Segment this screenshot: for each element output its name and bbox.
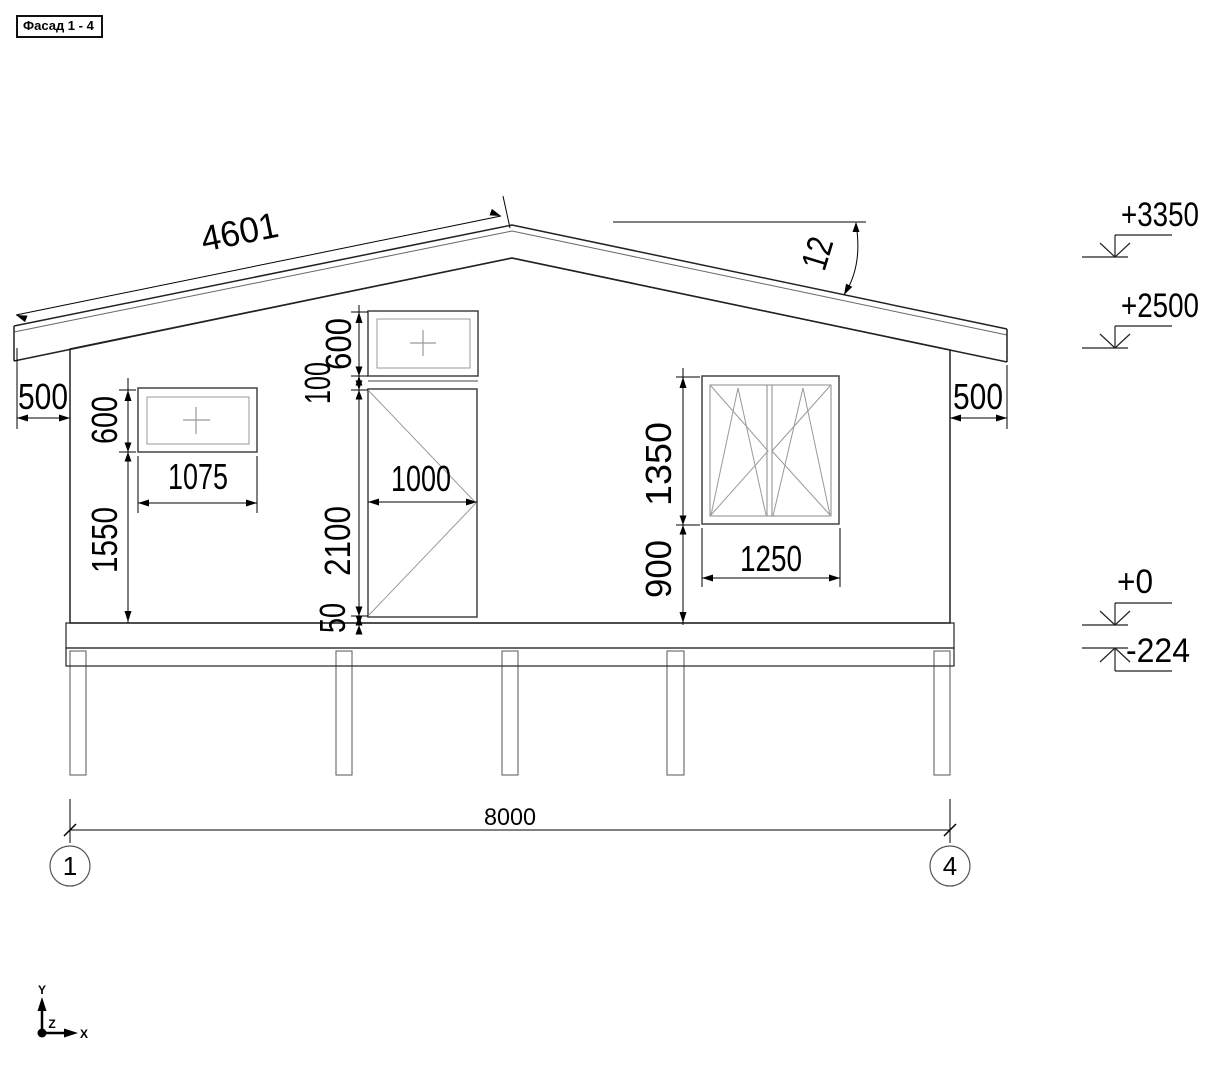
ucs-y-arrow xyxy=(38,997,47,1011)
dim-left-window-width: 1075 xyxy=(168,456,228,497)
dim-roof-slope-length: 4601 xyxy=(197,204,282,260)
dim-right-window-height: 1350 xyxy=(638,422,679,506)
post xyxy=(336,651,352,775)
level-eave-value: +2500 xyxy=(1121,287,1199,325)
dim-door-width: 1000 xyxy=(391,458,451,499)
post xyxy=(934,651,950,775)
dim-eave-right: 500 xyxy=(953,376,1003,417)
window-left xyxy=(138,388,257,452)
ucs-x-arrow xyxy=(64,1029,78,1038)
level-underfloor-value: -224 xyxy=(1126,632,1190,670)
dim-left-window-height: 600 xyxy=(84,396,125,444)
dim-door-height: 2100 xyxy=(317,506,358,576)
dim-eave-left: 500 xyxy=(18,376,68,417)
ucs-z-label: Z xyxy=(48,1017,55,1031)
dim-overall-width: 8000 xyxy=(484,804,536,831)
level-mark-floor xyxy=(1082,603,1172,625)
dim-transom-gap: 100 xyxy=(297,362,338,404)
axis-markers: 1 4 xyxy=(50,846,970,886)
axis-label-1: 1 xyxy=(63,851,77,881)
ucs-y-label: Y xyxy=(38,983,46,997)
facade-drawing: 4601 12 500 600 1075 1550 600 100 2100 1… xyxy=(0,0,1211,1080)
door-transom-window xyxy=(368,311,478,381)
dim-left-window-sill: 1550 xyxy=(84,507,125,573)
dim-right-window-width: 1250 xyxy=(740,538,802,579)
ucs-x-label: X xyxy=(80,1027,88,1041)
post xyxy=(70,651,86,775)
ucs-icon: Y X Z xyxy=(38,983,89,1041)
door xyxy=(368,389,477,617)
post xyxy=(667,651,684,775)
dim-door-floor-gap: 50 xyxy=(312,603,353,633)
level-mark-eave xyxy=(1082,326,1172,348)
dim-right-window-sill: 900 xyxy=(638,540,679,598)
drawing-sheet: Фасад 1 - 4 xyxy=(0,0,1211,1080)
ucs-origin xyxy=(38,1029,47,1038)
window-right xyxy=(702,376,839,524)
dim-roof-angle: 12 xyxy=(793,232,842,275)
level-floor-value: +0 xyxy=(1117,563,1153,601)
level-mark-ridge xyxy=(1082,235,1172,257)
axis-label-4: 4 xyxy=(943,851,957,881)
foundation-posts xyxy=(70,651,950,775)
level-ridge-value: +3350 xyxy=(1121,196,1199,234)
post xyxy=(502,651,518,775)
